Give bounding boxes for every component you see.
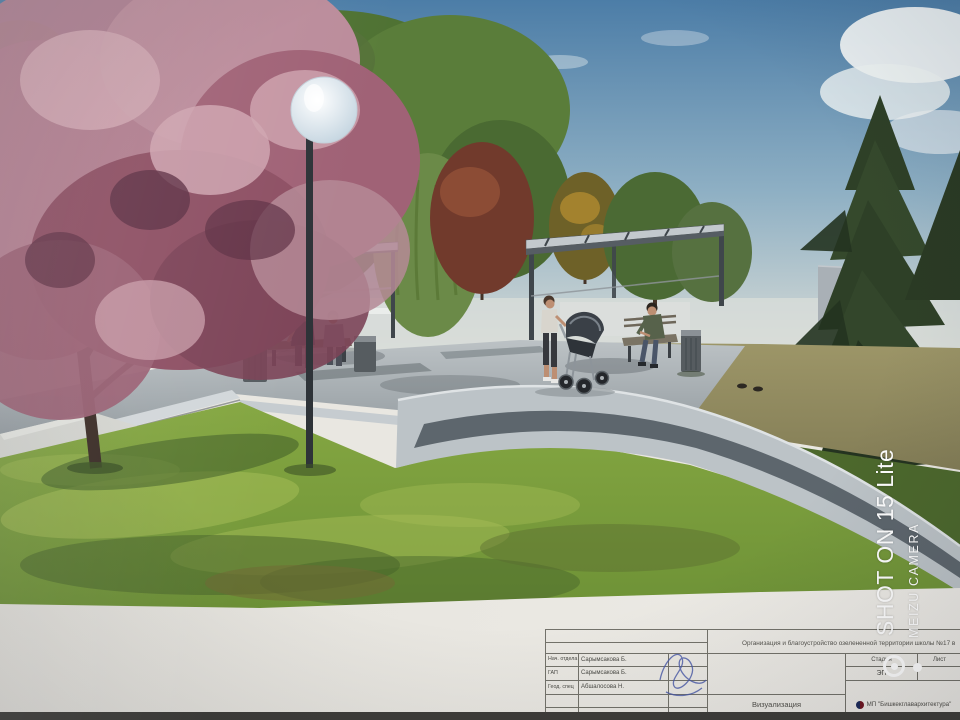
watermark-shot-on: SHOT ON 15 Lite: [872, 449, 899, 636]
stage-value: ЭП: [846, 667, 918, 681]
role-label: Геод. спец: [546, 681, 579, 695]
organization-logo-icon: [856, 701, 864, 709]
sheet-label: Лист: [918, 654, 960, 667]
lens-center-dot: [891, 663, 898, 670]
camera-lens-icon: [883, 655, 905, 677]
empty-cell: [546, 695, 579, 708]
project-title: Организация и благоустройство озелененно…: [708, 630, 960, 654]
camera-dot-icon: [913, 663, 922, 672]
photo-of-architectural-rendering: Организация и благоустройство озелененно…: [0, 0, 960, 720]
role-label: ГАП: [546, 667, 579, 681]
watermark-camera-brand: MEIZU CAMERA: [907, 523, 921, 638]
empty-cell: [918, 667, 960, 681]
empty-cell: [708, 654, 846, 695]
photo-bottom-edge: [0, 712, 960, 720]
role-label: Нач. отдела: [546, 654, 579, 667]
organization-name: МП "Бишкекглавархитектура": [867, 702, 952, 709]
architectural-render: [0, 0, 960, 622]
handwritten-signature: [652, 644, 712, 700]
red-tree: [430, 142, 534, 294]
lamp-globe: [291, 77, 357, 143]
stage-label: Стадия: [846, 654, 918, 667]
